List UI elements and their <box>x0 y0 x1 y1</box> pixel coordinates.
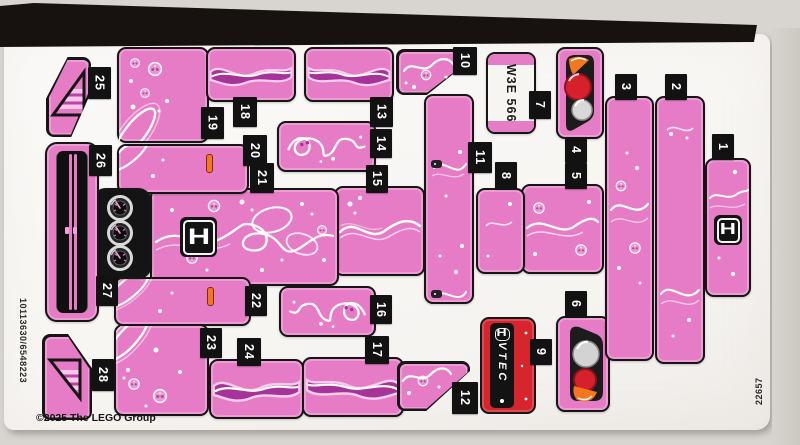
sticker-number-label: 18 <box>238 104 252 120</box>
gauge-cluster-icon <box>94 190 150 277</box>
sticker-number-tag-15: 15 <box>366 165 388 193</box>
sticker-27-gauges <box>92 188 152 279</box>
sticker-9-vtec: H VTEC <box>480 317 536 414</box>
sticker-number-tag-25: 25 <box>88 67 111 99</box>
sticker-number-tag-10: 10 <box>453 47 477 75</box>
sticker-18 <box>206 47 296 102</box>
sticker-number-tag-6: 6 <box>565 291 587 317</box>
sticker-14 <box>277 121 376 172</box>
copyright-text: ©2025 The LEGO Group <box>36 412 156 424</box>
flame-wave-icon <box>304 359 402 415</box>
sticker-24 <box>209 359 304 419</box>
sticker-23 <box>114 324 209 416</box>
sticker-number-label: 20 <box>248 143 262 159</box>
bubbles-swirl-icon <box>119 49 207 141</box>
sticker-number-label: 9 <box>534 348 548 356</box>
honda-logo: H <box>714 215 742 245</box>
sheet-serial-left: 10113630/6548223 <box>18 298 28 430</box>
sticker-number-tag-27: 27 <box>96 276 118 306</box>
sticker-number-tag-23: 23 <box>200 328 222 358</box>
sticker-22 <box>114 277 251 326</box>
wave-lines-icon <box>336 188 423 274</box>
sticker-number-tag-19: 19 <box>201 107 224 139</box>
sticker-number-tag-1: 1 <box>712 134 734 160</box>
squiggle-icon <box>279 123 374 170</box>
sticker-number-tag-13: 13 <box>370 97 393 127</box>
orange-indicator-icon <box>206 154 213 173</box>
sticker-number-tag-11: 11 <box>468 142 492 173</box>
sticker-number-tag-9: 9 <box>530 339 552 365</box>
sticker-number-label: 21 <box>255 170 269 186</box>
dots-icon <box>478 190 523 272</box>
sticker-13 <box>304 47 394 102</box>
sticker-4 <box>556 47 604 139</box>
loop-icon <box>119 146 247 192</box>
sticker-number-tag-17: 17 <box>365 336 389 364</box>
bubbles-swirl-icon <box>116 326 207 414</box>
sticker-number-label: 19 <box>206 115 220 131</box>
sticker-number-label: 3 <box>619 83 633 91</box>
sticker-number-label: 8 <box>499 172 513 180</box>
sticker-number-tag-20: 20 <box>243 135 267 166</box>
sticker-sheet-photo: W3E 566 <box>0 0 800 445</box>
sticker-number-label: 26 <box>94 153 108 169</box>
head-light-icon <box>558 318 608 410</box>
sticker-number-label: 25 <box>93 75 107 91</box>
squiggle-icon <box>281 288 374 335</box>
sticker-number-tag-24: 24 <box>237 338 261 366</box>
sticker-number-label: 4 <box>569 146 583 154</box>
flame-wave-icon <box>211 361 302 417</box>
sticker-number-label: 28 <box>96 367 110 383</box>
sticker-number-label: 1 <box>716 143 730 151</box>
sticker-number-label: 12 <box>458 390 472 406</box>
sticker-number-label: 5 <box>569 172 583 180</box>
sticker-number-label: 23 <box>204 335 218 351</box>
sticker-number-tag-12: 12 <box>452 382 478 414</box>
grille-stripe <box>69 154 72 310</box>
sticker-5 <box>521 184 604 274</box>
sticker-number-label: 17 <box>370 342 384 358</box>
sticker-number-label: 10 <box>458 53 472 69</box>
grille-slot <box>56 151 88 313</box>
sticker-3 <box>605 96 654 361</box>
sticker-2 <box>655 96 705 364</box>
sticker-number-label: 14 <box>374 136 388 152</box>
sticker-number-label: 24 <box>242 344 256 360</box>
sticker-number-tag-7: 7 <box>529 91 551 119</box>
sticker-number-tag-5: 5 <box>565 163 587 189</box>
wave-bubbles-icon <box>523 186 602 272</box>
sticker-6 <box>556 316 610 412</box>
sticker-number-tag-22: 22 <box>245 286 267 316</box>
sticker-number-tag-14: 14 <box>370 129 392 158</box>
honda-logo: H <box>180 217 217 257</box>
plate-bottom-band <box>488 121 534 132</box>
sticker-number-tag-8: 8 <box>495 162 517 189</box>
sticker-number-tag-4: 4 <box>565 137 587 163</box>
strip-swirls-icon <box>657 98 703 362</box>
strip-swirls-icon <box>426 96 472 302</box>
sticker-8 <box>476 188 525 274</box>
sticker-number-label: 6 <box>569 300 583 308</box>
flame-wave-icon <box>208 49 294 100</box>
sticker-number-tag-16: 16 <box>370 295 392 324</box>
sticker-number-tag-18: 18 <box>233 97 257 127</box>
sticker-number-label: 16 <box>374 302 388 318</box>
sticker-number-label: 2 <box>669 83 683 91</box>
license-plate-text: W3E 566 <box>504 64 518 122</box>
grille-dash <box>73 227 77 234</box>
sticker-number-tag-2: 2 <box>665 74 687 100</box>
sticker-11 <box>424 94 474 304</box>
sticker-number-tag-26: 26 <box>89 145 112 176</box>
honda-logo: H <box>493 326 511 342</box>
tail-light-icon <box>558 49 602 137</box>
sticker-number-label: 13 <box>375 104 389 120</box>
sticker-20 <box>117 144 249 194</box>
sticker-1: H <box>705 158 751 297</box>
sticker-number-label: 22 <box>249 293 263 309</box>
sticker-number-tag-3: 3 <box>615 74 637 100</box>
sticker-number-label: 15 <box>370 171 384 187</box>
sticker-number-label: 27 <box>100 283 114 299</box>
orange-indicator-icon <box>207 287 214 306</box>
sticker-19 <box>117 47 209 143</box>
sticker-number-tag-21: 21 <box>250 163 274 193</box>
sticker-17 <box>302 357 404 417</box>
flame-wave-icon <box>306 49 392 100</box>
sticker-number-label: 7 <box>533 101 547 109</box>
loop-icon <box>116 279 249 324</box>
grille-dash <box>65 227 69 234</box>
sheet-serial-right: 22657 <box>754 355 764 405</box>
sticker-number-label: 11 <box>473 150 487 165</box>
sticker-21: H <box>150 188 339 286</box>
strip-swirls-icon <box>607 98 652 359</box>
sticker-16 <box>279 286 376 337</box>
sticker-15 <box>334 186 425 276</box>
sticker-number-tag-28: 28 <box>92 359 114 391</box>
